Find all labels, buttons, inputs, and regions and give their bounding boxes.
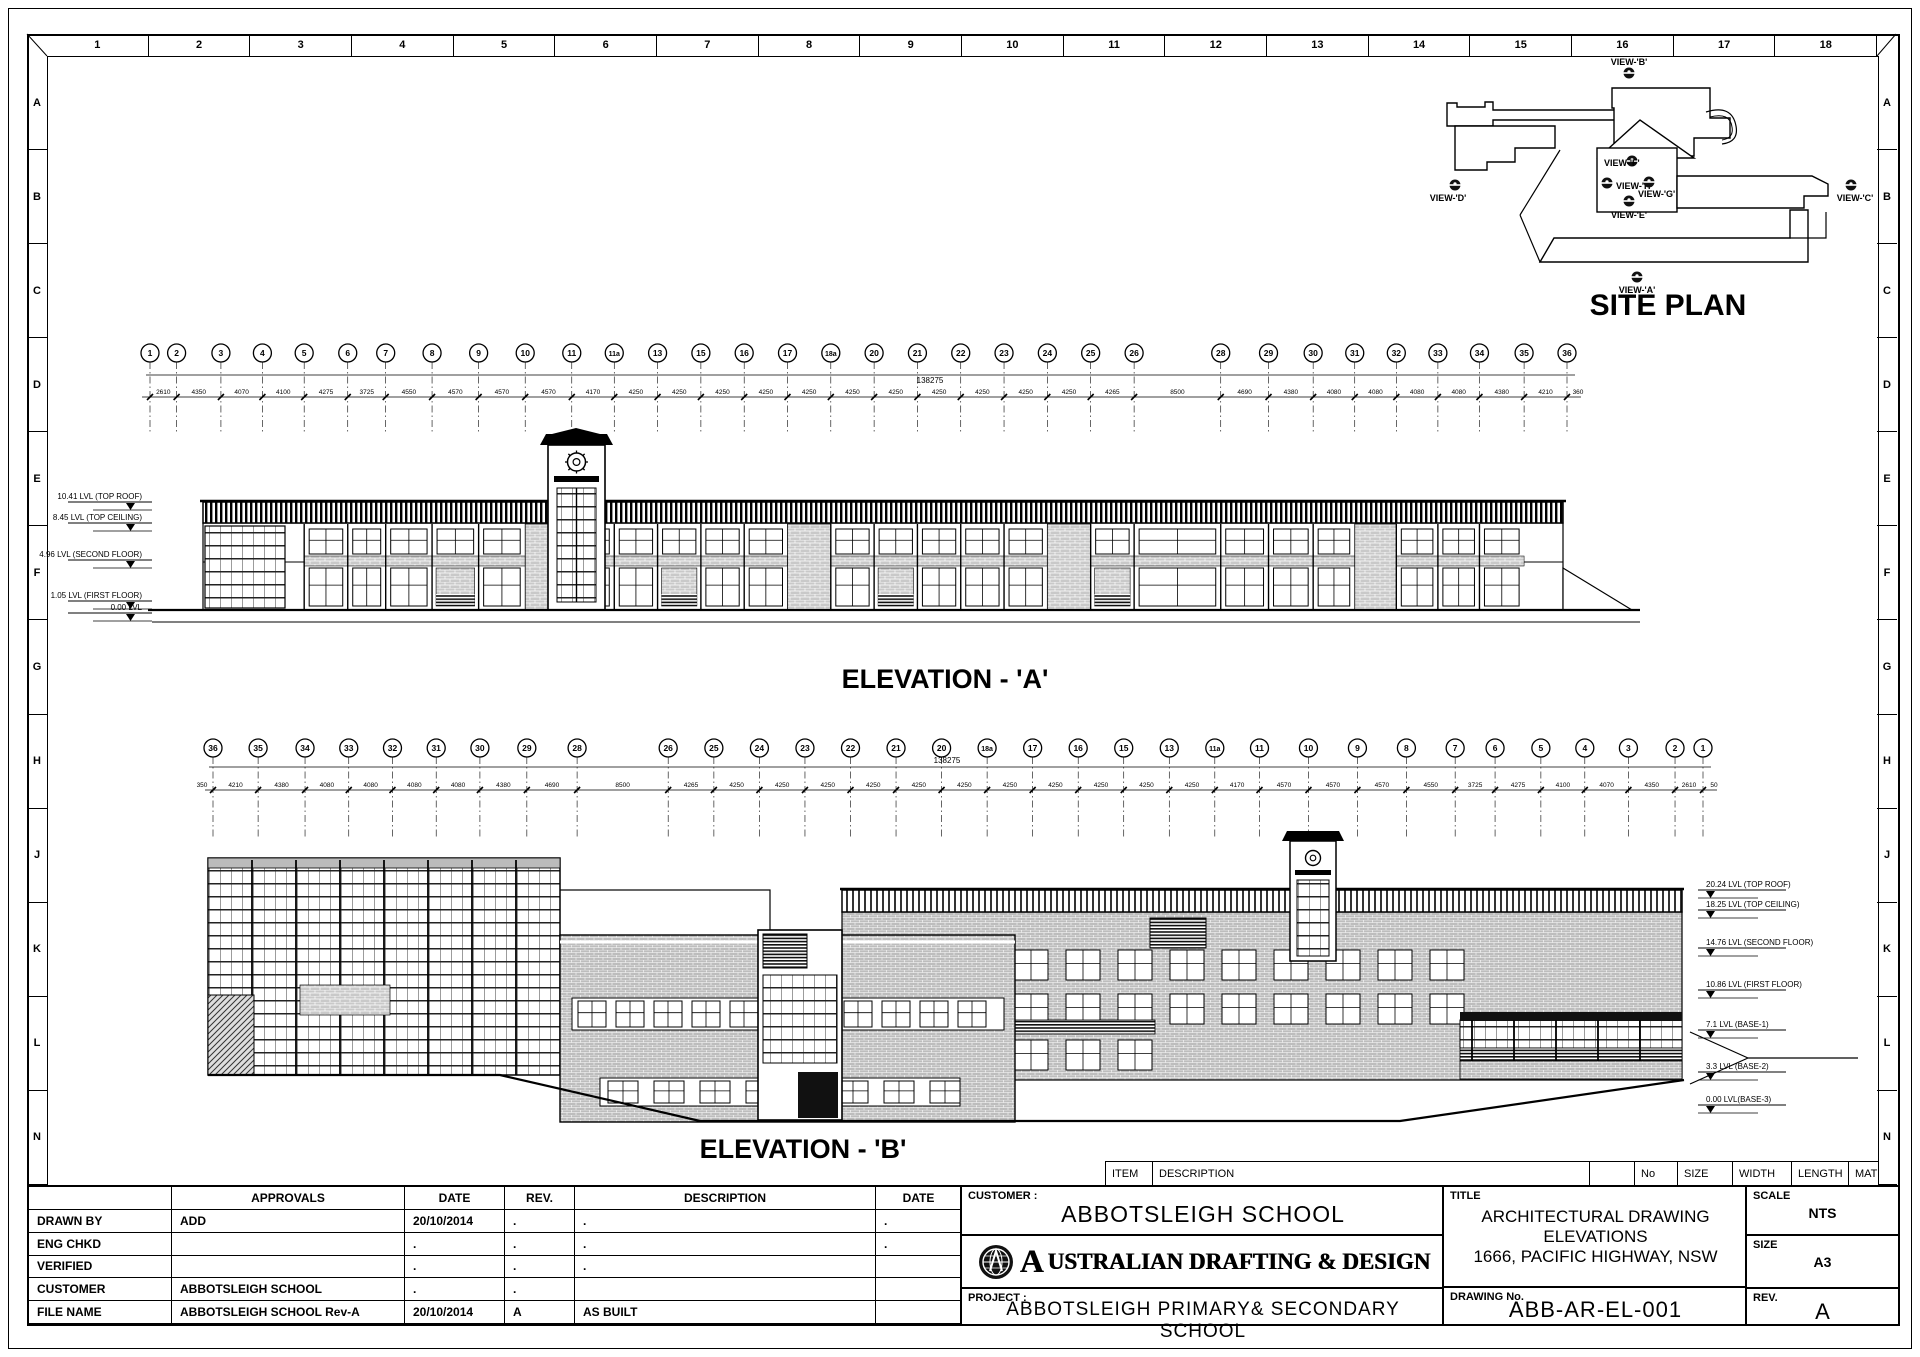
svg-text:21: 21 — [913, 348, 923, 358]
grid-bubble: 3 — [1619, 739, 1637, 757]
svg-text:11: 11 — [567, 348, 576, 358]
scale-label: SCALE — [1753, 1190, 1790, 1202]
level-marker: 0.00 LVL — [68, 603, 152, 621]
grid-bubble: 18a — [978, 739, 996, 757]
span-dimension: 4250 — [1094, 782, 1109, 789]
span-dimension: 4080 — [1451, 389, 1466, 396]
svg-text:34: 34 — [300, 743, 310, 753]
span-dimension: 4250 — [1048, 782, 1063, 789]
span-dimension: 4690 — [545, 782, 560, 789]
span-dimension: 8500 — [615, 782, 630, 789]
approvals-header: REV. — [505, 1187, 575, 1210]
span-dimension: 4080 — [451, 782, 466, 789]
svg-text:30: 30 — [475, 743, 485, 753]
level-marker: 0.00 LVL(BASE-3) — [1698, 1095, 1786, 1113]
approvals-cell: . — [405, 1256, 505, 1279]
svg-text:16: 16 — [1073, 743, 1083, 753]
grid-bubble: 33 — [1429, 344, 1447, 362]
grid-bubble: 16 — [735, 344, 753, 362]
site-plan-title: SITE PLAN — [1590, 289, 1747, 322]
view-marker: VIEW-'F' — [1604, 156, 1640, 169]
customer-name: ABBOTSLEIGH SCHOOL — [962, 1201, 1444, 1228]
svg-text:10.41 LVL (TOP ROOF): 10.41 LVL (TOP ROOF) — [57, 492, 142, 501]
svg-text:360: 360 — [1573, 389, 1584, 396]
grid-bubble: 15 — [692, 344, 710, 362]
svg-text:2: 2 — [174, 348, 179, 358]
drawing-sheet: 123456789101112131415161718 ABCDEFGHJKLN… — [0, 0, 1920, 1357]
span-dimension: 4570 — [1277, 782, 1292, 789]
span-dimension: 4210 — [228, 782, 243, 789]
svg-text:17: 17 — [1028, 743, 1038, 753]
span-dimension: 2610 — [1682, 782, 1697, 789]
scale-value: NTS — [1747, 1205, 1898, 1221]
svg-text:10.86 LVL (FIRST FLOOR): 10.86 LVL (FIRST FLOOR) — [1706, 980, 1802, 989]
span-dimension: 4250 — [889, 389, 904, 396]
site-plan: VIEW-'B'VIEW-'D'VIEW-'F'VIEW-'H'VIEW-'G'… — [1430, 57, 1874, 322]
svg-text:350: 350 — [197, 782, 208, 789]
grid-bubble: 9 — [470, 344, 488, 362]
approvals-cell: VERIFIED — [29, 1256, 172, 1279]
svg-text:13: 13 — [653, 348, 663, 358]
approvals-cell: A — [505, 1301, 575, 1324]
approvals-header: DESCRIPTION — [575, 1187, 876, 1210]
span-dimension: 4250 — [629, 389, 644, 396]
grid-bubble: 24 — [750, 739, 768, 757]
view-marker: VIEW-'B' — [1611, 57, 1648, 79]
svg-text:20.24 LVL (TOP ROOF): 20.24 LVL (TOP ROOF) — [1706, 880, 1791, 889]
elevation-b-title: ELEVATION - 'B' — [700, 1134, 907, 1164]
svg-text:3: 3 — [1626, 743, 1631, 753]
elevation-a: 1261024350340704410054275637257455084570… — [39, 344, 1640, 694]
approvals-cell: ABBOTSLEIGH SCHOOL — [172, 1278, 405, 1301]
grid-bubble: 22 — [841, 739, 859, 757]
svg-text:29: 29 — [522, 743, 532, 753]
svg-text:28: 28 — [572, 743, 582, 753]
approvals-cell: . — [505, 1233, 575, 1256]
grid-bubble: 32 — [383, 739, 401, 757]
company-name: USTRALIAN DRAFTING & DESIGN — [1048, 1249, 1431, 1275]
span-dimension: 4570 — [1375, 782, 1390, 789]
company-logo-cell: A USTRALIAN DRAFTING & DESIGN — [962, 1236, 1444, 1289]
grid-bubble: 23 — [796, 739, 814, 757]
grid-bubble: 30 — [471, 739, 489, 757]
grid-bubble: 28 — [1212, 344, 1230, 362]
span-dimension: 4170 — [586, 389, 601, 396]
svg-text:8: 8 — [430, 348, 435, 358]
svg-text:18.25 LVL (TOP CEILING): 18.25 LVL (TOP CEILING) — [1706, 900, 1800, 909]
span-dimension: 4250 — [932, 389, 947, 396]
item-strip-header: DESCRIPTION — [1153, 1162, 1590, 1186]
svg-text:VIEW-'E': VIEW-'E' — [1611, 210, 1647, 220]
title-block-title: TITLE ARCHITECTURAL DRAWING ELEVATIONS 1… — [1442, 1185, 1747, 1326]
scale-cell: SCALE NTS — [1747, 1187, 1898, 1236]
svg-text:0.00 LVL: 0.00 LVL — [111, 603, 143, 612]
svg-text:VIEW-'G': VIEW-'G' — [1638, 189, 1675, 199]
svg-text:15: 15 — [696, 348, 706, 358]
title-label: TITLE — [1450, 1190, 1481, 1202]
svg-text:1: 1 — [148, 348, 153, 358]
svg-text:10: 10 — [1304, 743, 1314, 753]
svg-text:0.00 LVL(BASE-3): 0.00 LVL(BASE-3) — [1706, 1095, 1772, 1104]
svg-text:4: 4 — [260, 348, 265, 358]
item-strip-header: ITEM — [1106, 1162, 1153, 1186]
approvals-cell: . — [505, 1278, 575, 1301]
view-marker: VIEW-'C' — [1837, 180, 1874, 204]
drawing-title-cell: TITLE ARCHITECTURAL DRAWING ELEVATIONS 1… — [1444, 1187, 1747, 1288]
grid-bubble: 29 — [1260, 344, 1278, 362]
svg-text:22: 22 — [956, 348, 966, 358]
span-dimension: 4250 — [1139, 782, 1154, 789]
span-dimension: 4250 — [715, 389, 730, 396]
approvals-cell: . — [575, 1233, 876, 1256]
grid-bubble: 7 — [377, 344, 395, 362]
svg-text:23: 23 — [999, 348, 1009, 358]
span-dimension: 4380 — [1284, 389, 1299, 396]
rev-value: A — [1747, 1299, 1898, 1325]
grid-bubble: 25 — [705, 739, 723, 757]
svg-text:11a: 11a — [609, 351, 620, 358]
svg-text:1.05 LVL (FIRST FLOOR): 1.05 LVL (FIRST FLOOR) — [51, 591, 143, 600]
svg-text:4: 4 — [1582, 743, 1587, 753]
approvals-header — [29, 1187, 172, 1210]
grid-bubble: 13 — [1160, 739, 1178, 757]
grid-bubble: 34 — [1470, 344, 1488, 362]
span-dimension: 4250 — [759, 389, 774, 396]
svg-text:32: 32 — [1392, 348, 1402, 358]
grid-bubble: 21 — [887, 739, 905, 757]
approvals-cell: . — [505, 1210, 575, 1233]
grid-bubble: 8 — [423, 344, 441, 362]
approvals-cell — [876, 1301, 962, 1324]
span-dimension: 4080 — [363, 782, 378, 789]
approvals-cell: AS BUILT — [575, 1301, 876, 1324]
svg-text:6: 6 — [1493, 743, 1498, 753]
grid-bubble: 11 — [1250, 739, 1268, 757]
grid-bubble: 26 — [1125, 344, 1143, 362]
svg-text:18a: 18a — [981, 746, 993, 753]
svg-text:22: 22 — [846, 743, 856, 753]
svg-text:33: 33 — [344, 743, 354, 753]
svg-text:6: 6 — [345, 348, 350, 358]
span-dimension: 4275 — [1511, 782, 1526, 789]
svg-text:VIEW-'F': VIEW-'F' — [1604, 158, 1640, 168]
drawing-title-line1: ARCHITECTURAL DRAWING — [1444, 1207, 1747, 1227]
svg-text:2: 2 — [1673, 743, 1678, 753]
span-dimension: 4250 — [1003, 782, 1018, 789]
svg-text:1: 1 — [1701, 743, 1706, 753]
approvals-cell: ABBOTSLEIGH SCHOOL Rev-A — [172, 1301, 405, 1324]
grid-bubble: 35 — [1515, 344, 1533, 362]
item-strip-header — [1590, 1162, 1635, 1186]
span-dimension: 4350 — [1644, 782, 1659, 789]
approvals-cell: FILE NAME — [29, 1301, 172, 1324]
span-dimension: 4250 — [912, 782, 927, 789]
svg-text:20: 20 — [937, 743, 947, 753]
approvals-cell — [876, 1278, 962, 1301]
svg-text:35: 35 — [253, 743, 263, 753]
span-dimension: 4570 — [495, 389, 510, 396]
svg-text:11: 11 — [1255, 743, 1264, 753]
svg-text:3.3 LVL (BASE-2): 3.3 LVL (BASE-2) — [1706, 1062, 1769, 1071]
svg-text:26: 26 — [1129, 348, 1139, 358]
view-marker: VIEW-'D' — [1430, 180, 1467, 204]
approvals-cell: . — [876, 1210, 962, 1233]
grid-bubble: 5 — [295, 344, 313, 362]
approvals-cell: ENG CHKD — [29, 1233, 172, 1256]
svg-text:13: 13 — [1165, 743, 1175, 753]
span-dimension: 4570 — [448, 389, 463, 396]
span-dimension: 4250 — [820, 782, 835, 789]
elevation-b: 3642103543803440803340803240803140803043… — [197, 739, 1858, 1164]
approvals-cell: 20/10/2014 — [405, 1301, 505, 1324]
grid-bubble: 5 — [1532, 739, 1550, 757]
grid-bubble: 23 — [995, 344, 1013, 362]
approvals-cell: ADD — [172, 1210, 405, 1233]
approvals-cell: . — [405, 1278, 505, 1301]
svg-text:5: 5 — [302, 348, 307, 358]
svg-text:7: 7 — [1453, 743, 1458, 753]
svg-text:28: 28 — [1216, 348, 1226, 358]
svg-text:3: 3 — [219, 348, 224, 358]
span-dimension: 4100 — [276, 389, 291, 396]
svg-text:31: 31 — [1350, 348, 1360, 358]
drawing-canvas: VIEW-'B'VIEW-'D'VIEW-'F'VIEW-'H'VIEW-'G'… — [0, 0, 1920, 1357]
span-dimension: 4100 — [1556, 782, 1571, 789]
svg-text:25: 25 — [1086, 348, 1096, 358]
approvals-cell: . — [575, 1256, 876, 1279]
grid-bubble: 1 — [1694, 739, 1712, 757]
drawing-number-cell: DRAWING No. ABB-AR-EL-001 — [1444, 1288, 1747, 1324]
approvals-header: DATE — [405, 1187, 505, 1210]
span-dimension: 4080 — [1410, 389, 1425, 396]
grid-bubble: 32 — [1387, 344, 1405, 362]
svg-text:33: 33 — [1433, 348, 1443, 358]
approvals-cell — [876, 1256, 962, 1279]
span-dimension: 4080 — [320, 782, 335, 789]
grid-bubble: 2 — [1666, 739, 1684, 757]
grid-bubble: 8 — [1397, 739, 1415, 757]
level-marker: 18.25 LVL (TOP CEILING) — [1698, 900, 1800, 918]
approvals-cell: 20/10/2014 — [405, 1210, 505, 1233]
span-dimension: 4570 — [1326, 782, 1341, 789]
svg-text:8.45 LVL (TOP CEILING): 8.45 LVL (TOP CEILING) — [53, 513, 142, 522]
svg-text:18a: 18a — [825, 351, 837, 358]
grid-bubble: 26 — [659, 739, 677, 757]
span-dimension: 4250 — [1018, 389, 1033, 396]
grid-bubble: 33 — [340, 739, 358, 757]
level-marker: 4.96 LVL (SECOND FLOOR) — [39, 550, 152, 568]
overall-dimension: 138275 — [934, 756, 961, 765]
grid-bubble: 6 — [1486, 739, 1504, 757]
elevation-a-title: ELEVATION - 'A' — [842, 664, 1049, 694]
grid-bubble: 6 — [339, 344, 357, 362]
drawing-number: ABB-AR-EL-001 — [1444, 1297, 1747, 1323]
span-dimension: 4250 — [845, 389, 860, 396]
item-strip-header: MATERIAL — [1849, 1162, 1878, 1186]
approvals-cell — [575, 1278, 876, 1301]
grid-bubble: 21 — [908, 344, 926, 362]
size-label: SIZE — [1753, 1239, 1777, 1251]
size-cell: SIZE A3 — [1747, 1236, 1898, 1289]
svg-text:11a: 11a — [1209, 746, 1220, 753]
item-strip-header: WIDTH — [1733, 1162, 1792, 1186]
approvals-cell — [172, 1233, 405, 1256]
approvals-header: APPROVALS — [172, 1187, 405, 1210]
grid-bubble: 3 — [212, 344, 230, 362]
grid-bubble: 34 — [296, 739, 314, 757]
grid-bubble: 1 — [141, 344, 159, 362]
grid-bubble: 11a — [605, 344, 623, 362]
span-dimension: 4170 — [1230, 782, 1245, 789]
span-dimension: 4350 — [192, 389, 207, 396]
span-dimension: 4080 — [1368, 389, 1383, 396]
grid-bubble: 36 — [204, 739, 222, 757]
approvals-table: APPROVALSDATEREV.DESCRIPTIONDATEDRAWN BY… — [27, 1185, 964, 1326]
svg-text:36: 36 — [208, 743, 218, 753]
svg-text:30: 30 — [1308, 348, 1318, 358]
svg-text:50: 50 — [1710, 782, 1718, 789]
span-dimension: 8500 — [1170, 389, 1185, 396]
svg-text:21: 21 — [891, 743, 901, 753]
grid-bubble: 29 — [518, 739, 536, 757]
svg-text:4.96 LVL (SECOND FLOOR): 4.96 LVL (SECOND FLOOR) — [39, 550, 142, 559]
grid-bubble: 31 — [1346, 344, 1364, 362]
approvals-cell: DRAWN BY — [29, 1210, 172, 1233]
grid-bubble: 36 — [1558, 344, 1576, 362]
grid-bubble: 10 — [1299, 739, 1317, 757]
level-marker: 10.86 LVL (FIRST FLOOR) — [1698, 980, 1802, 998]
grid-bubble: 13 — [649, 344, 667, 362]
size-value: A3 — [1747, 1254, 1898, 1270]
svg-text:31: 31 — [431, 743, 441, 753]
grid-bubble: 17 — [1024, 739, 1042, 757]
overall-dimension: 138275 — [917, 376, 944, 385]
span-dimension: 2610 — [156, 389, 171, 396]
span-dimension: 4070 — [1599, 782, 1614, 789]
svg-text:17: 17 — [783, 348, 793, 358]
grid-bubble: 35 — [249, 739, 267, 757]
svg-text:24: 24 — [755, 743, 765, 753]
svg-text:20: 20 — [869, 348, 879, 358]
svg-text:26: 26 — [663, 743, 673, 753]
span-dimension: 4080 — [407, 782, 422, 789]
span-dimension: 3725 — [1468, 782, 1483, 789]
span-dimension: 4250 — [866, 782, 881, 789]
grid-bubble: 9 — [1348, 739, 1366, 757]
title-block-scale: SCALE NTS SIZE A3 REV. A — [1745, 1185, 1898, 1326]
grid-bubble: 22 — [952, 344, 970, 362]
svg-text:35: 35 — [1519, 348, 1529, 358]
approvals-cell: . — [575, 1210, 876, 1233]
grid-bubble: 17 — [778, 344, 796, 362]
svg-text:16: 16 — [739, 348, 749, 358]
elevation-b-building — [208, 858, 1684, 1122]
clock-tower — [540, 428, 613, 610]
span-dimension: 4380 — [1495, 389, 1510, 396]
svg-text:32: 32 — [388, 743, 398, 753]
svg-text:9: 9 — [1355, 743, 1360, 753]
clock-tower-b — [1282, 831, 1344, 961]
level-marker: 20.24 LVL (TOP ROOF) — [1698, 880, 1791, 898]
grid-bubble: 28 — [568, 739, 586, 757]
approvals-header: DATE — [876, 1187, 962, 1210]
grid-bubble: 30 — [1304, 344, 1322, 362]
span-dimension: 4275 — [319, 389, 334, 396]
span-dimension: 4250 — [802, 389, 817, 396]
approvals-cell: CUSTOMER — [29, 1278, 172, 1301]
item-strip-header: No — [1635, 1162, 1678, 1186]
span-dimension: 4570 — [541, 389, 556, 396]
grid-bubble: 25 — [1082, 344, 1100, 362]
svg-text:36: 36 — [1562, 348, 1572, 358]
span-dimension: 4070 — [234, 389, 249, 396]
svg-text:10: 10 — [520, 348, 530, 358]
svg-text:34: 34 — [1475, 348, 1485, 358]
grid-bubble: 7 — [1446, 739, 1464, 757]
grid-bubble: 31 — [427, 739, 445, 757]
level-marker: 14.76 LVL (SECOND FLOOR) — [1698, 938, 1813, 956]
span-dimension: 4250 — [1062, 389, 1077, 396]
level-marker: 8.45 LVL (TOP CEILING) — [53, 513, 152, 531]
item-schedule-header: ITEMDESCRIPTIONNoSIZEWIDTHLENGTHMATERIAL — [1105, 1161, 1879, 1187]
svg-text:14.76 LVL (SECOND FLOOR): 14.76 LVL (SECOND FLOOR) — [1706, 938, 1813, 947]
project-cell: PROJECT : ABBOTSLEIGH PRIMARY& SECONDARY… — [962, 1289, 1444, 1324]
span-dimension: 4250 — [729, 782, 744, 789]
svg-text:15: 15 — [1119, 743, 1129, 753]
span-dimension: 4550 — [1424, 782, 1439, 789]
project-name: ABBOTSLEIGH PRIMARY& SECONDARY SCHOOL — [962, 1299, 1444, 1343]
svg-text:VIEW-'B': VIEW-'B' — [1611, 57, 1648, 67]
item-strip-header: LENGTH — [1792, 1162, 1849, 1186]
grid-bubble: 24 — [1038, 344, 1056, 362]
span-dimension: 4250 — [975, 389, 990, 396]
grid-bubble: 18a — [822, 344, 840, 362]
approvals-cell: . — [876, 1233, 962, 1256]
svg-text:8: 8 — [1404, 743, 1409, 753]
approvals-cell: . — [505, 1256, 575, 1279]
span-dimension: 4265 — [1105, 389, 1120, 396]
grid-bubble: 2 — [168, 344, 186, 362]
span-dimension: 4380 — [274, 782, 289, 789]
span-dimension: 4380 — [496, 782, 511, 789]
grid-bubble: 4 — [1576, 739, 1594, 757]
span-dimension: 4265 — [684, 782, 699, 789]
approvals-cell: . — [405, 1233, 505, 1256]
grid-bubble: 20 — [865, 344, 883, 362]
svg-text:29: 29 — [1264, 348, 1274, 358]
grid-bubble: 15 — [1115, 739, 1133, 757]
title-block-customer: CUSTOMER : ABBOTSLEIGH SCHOOL A USTRALIA… — [960, 1185, 1444, 1326]
elevation-a-building — [200, 501, 1632, 610]
svg-text:9: 9 — [476, 348, 481, 358]
grid-bubble: 16 — [1069, 739, 1087, 757]
svg-text:25: 25 — [709, 743, 719, 753]
rev-cell: REV. A — [1747, 1289, 1898, 1324]
level-marker: 7.1 LVL (BASE-1) — [1698, 1020, 1786, 1038]
span-dimension: 4250 — [1185, 782, 1200, 789]
grid-bubble: 11 — [563, 344, 581, 362]
company-emblem-icon — [976, 1242, 1016, 1282]
level-marker: 3.3 LVL (BASE-2) — [1698, 1062, 1786, 1080]
svg-text:VIEW-'C': VIEW-'C' — [1837, 193, 1874, 203]
svg-text:23: 23 — [800, 743, 810, 753]
span-dimension: 4550 — [402, 389, 417, 396]
span-dimension: 4250 — [672, 389, 687, 396]
span-dimension: 4080 — [1327, 389, 1342, 396]
svg-text:24: 24 — [1043, 348, 1053, 358]
svg-text:VIEW-'D': VIEW-'D' — [1430, 193, 1467, 203]
span-dimension: 4210 — [1538, 389, 1553, 396]
